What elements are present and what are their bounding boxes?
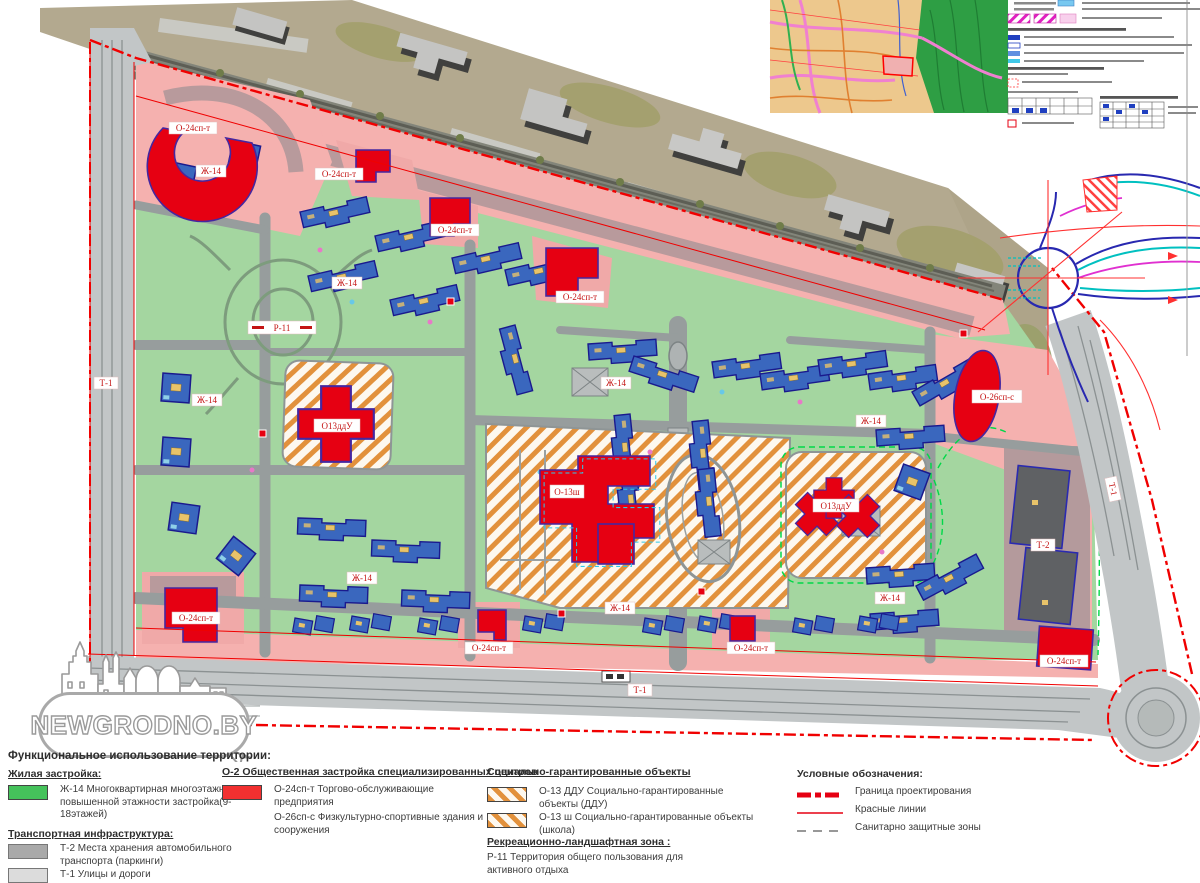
svg-text:О-24сп-т: О-24сп-т xyxy=(322,169,356,179)
svg-text:О13ддУ: О13ддУ xyxy=(820,501,852,511)
zone-label-o24-2: О-24сп-т xyxy=(315,168,363,180)
newgrodno-watermark: NEWGRODNO.BY xyxy=(28,626,266,762)
zone-label-zh14-2: Ж-14 xyxy=(332,277,362,289)
bus-stop xyxy=(602,671,630,682)
legend-item-r11: Р-11 Территория общего пользования для а… xyxy=(487,852,727,877)
map-legend: Функциональное использование территории:… xyxy=(0,744,1200,883)
svg-text:О-24сп-т: О-24сп-т xyxy=(734,643,768,653)
svg-text:Р-11: Р-11 xyxy=(274,323,291,333)
zone-label-zh14-4: Ж-14 xyxy=(601,377,631,389)
legend-item-redlines: Красные линии xyxy=(797,804,1035,817)
swatch-red-line xyxy=(797,809,843,817)
zone-label-zh14-7: Ж-14 xyxy=(605,602,635,614)
legend-heading-symbols: Условные обозначения: xyxy=(797,768,923,780)
swatch-green-residential xyxy=(8,785,48,800)
zone-label-o24-5: О-24сп-т xyxy=(172,612,220,624)
svg-text:О-26сп-с: О-26сп-с xyxy=(980,392,1014,402)
svg-text:О-24сп-т: О-24сп-т xyxy=(438,225,472,235)
swatch-boundary-line xyxy=(797,791,843,799)
zone-label-zh14-5: Ж-14 xyxy=(856,415,886,427)
svg-text:О-24сп-т: О-24сп-т xyxy=(176,123,210,133)
legend-heading-residential: Жилая застройка: xyxy=(8,768,101,780)
svg-text:Ж-14: Ж-14 xyxy=(880,593,901,603)
swatch-hatch-ddu xyxy=(487,787,527,802)
zone-label-zh14-6: Ж-14 xyxy=(347,572,377,584)
zone-label-zh14-3: Ж-14 xyxy=(192,394,222,406)
zone-label-zh14-1: Ж-14 xyxy=(196,165,226,177)
svg-text:Т-1: Т-1 xyxy=(100,378,113,388)
svg-text:О-24сп-т: О-24сп-т xyxy=(1047,656,1081,666)
logo-text: NEWGRODNO.BY xyxy=(31,710,258,741)
masterplan-page: О-24сп-т О-24сп-т О-24сп-т О-24сп-т О-24… xyxy=(0,0,1200,883)
zone-label-o24-7: О-24сп-т xyxy=(727,642,775,654)
zone-label-o13sh: О-13ш xyxy=(550,485,584,498)
swatch-sanitary-line xyxy=(797,827,843,835)
legend-title: Функциональное использование территории: xyxy=(8,750,271,762)
swatch-red-commercial xyxy=(222,785,262,800)
legend-item-o24: О-24сп-т Торгово-обслуживающие предприят… xyxy=(222,784,484,809)
svg-text:Ж-14: Ж-14 xyxy=(861,416,882,426)
legend-item-o13sh: О-13 ш Социально-гарантированные объекты… xyxy=(487,812,774,837)
legend-item-zh14: Ж-14 Многоквартирная многоэтажная и повы… xyxy=(8,784,245,822)
legend-heading-transport: Транспортная инфраструктура: xyxy=(8,828,173,840)
svg-text:Ж-14: Ж-14 xyxy=(610,603,631,613)
zone-label-o26: О-26сп-с xyxy=(972,390,1022,403)
road-label-t1-left: Т-1 xyxy=(94,377,118,389)
svg-text:Ж-14: Ж-14 xyxy=(197,395,218,405)
svg-text:Ж-14: Ж-14 xyxy=(606,378,627,388)
svg-text:Ж-14: Ж-14 xyxy=(352,573,373,583)
zone-label-o24-3: О-24сп-т xyxy=(431,224,479,236)
zone-label-o24-6: О-24сп-т xyxy=(465,642,513,654)
svg-text:Т-2: Т-2 xyxy=(1037,540,1050,550)
legend-heading-social: Социально-гарантированные объекты xyxy=(487,766,691,778)
svg-text:О-24сп-т: О-24сп-т xyxy=(563,292,597,302)
road-label-t1-bottom: Т-1 xyxy=(628,684,652,696)
legend-item-boundary: Граница проектирования xyxy=(797,786,1035,799)
legend-item-o13ddu: О-13 ДДУ Социально-гарантированные объек… xyxy=(487,786,764,811)
zone-label-o24-4: О-24сп-т xyxy=(556,291,604,303)
zone-label-o13ddu-2: О13ддУ xyxy=(813,499,859,512)
svg-text:О-24сп-т: О-24сп-т xyxy=(179,613,213,623)
zone-label-r11: Р-11 xyxy=(248,321,316,334)
svg-text:О-13ш: О-13ш xyxy=(554,487,579,497)
svg-text:О13ддУ: О13ддУ xyxy=(321,421,353,431)
zone-label-o24-1: О-24сп-т xyxy=(169,122,217,134)
svg-text:Ж-14: Ж-14 xyxy=(201,166,222,176)
legend-item-t1: Т-1 Улицы и дороги xyxy=(8,865,245,882)
legend-item-o26: О-26сп-с Физкультурно-спортивные здания … xyxy=(222,812,494,837)
svg-text:Ж-14: Ж-14 xyxy=(337,278,358,288)
swatch-gray-parking xyxy=(8,844,48,859)
inset-map xyxy=(770,0,1008,113)
zone-label-o24-8: О-24сп-т xyxy=(1040,655,1088,667)
road-label-t2: Т-2 xyxy=(1031,539,1055,551)
legend-item-sanitary: Санитарно защитные зоны xyxy=(797,822,1045,835)
svg-text:О-24сп-т: О-24сп-т xyxy=(472,643,506,653)
zone-label-o13ddu-1: О13ддУ xyxy=(314,419,360,432)
inset-legend xyxy=(1008,0,1200,128)
swatch-hatch-school xyxy=(487,813,527,828)
svg-text:Т-1: Т-1 xyxy=(634,685,647,695)
zone-label-zh14-8: Ж-14 xyxy=(875,592,905,604)
swatch-lightgray-roads xyxy=(8,868,48,883)
legend-heading-recreation: Рекреационно-ландшафтная зона : xyxy=(487,836,670,848)
